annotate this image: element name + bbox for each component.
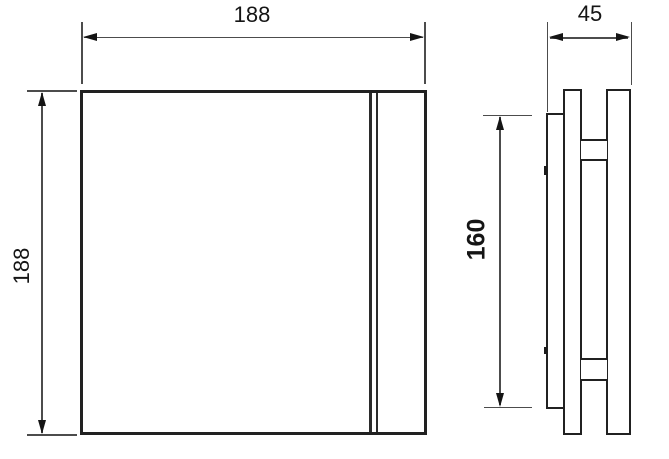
- side-view-bottom-spacer: [581, 358, 607, 381]
- dimension-label-duct-height: 160: [465, 205, 490, 275]
- arrowhead-down-icon: [38, 420, 46, 434]
- extension-line: [631, 22, 633, 85]
- dimension-label-front-height: 188: [11, 231, 33, 301]
- side-view-front-panel-bar: [606, 89, 631, 435]
- arrowhead-right-icon: [616, 33, 630, 41]
- back-plate-tab-mark-top: [544, 166, 547, 175]
- technical-drawing-canvas: 188 188 45 160: [0, 0, 669, 459]
- arrowhead-right-icon: [410, 33, 424, 41]
- side-view-top-spacer: [581, 139, 607, 161]
- arrowhead-up-icon: [38, 92, 46, 106]
- back-plate-tab-mark-bottom: [544, 347, 547, 354]
- arrowhead-up-icon: [496, 116, 504, 130]
- dimension-line: [41, 93, 43, 433]
- extension-line: [27, 434, 77, 436]
- extension-line: [483, 115, 532, 117]
- dimension-label-side-depth: 45: [555, 3, 625, 25]
- front-panel-seam-line-right: [376, 93, 379, 432]
- extension-line: [27, 90, 77, 92]
- extension-line: [424, 22, 426, 84]
- arrowhead-left-icon: [549, 33, 563, 41]
- side-view-body-bar: [563, 89, 582, 435]
- dimension-label-front-width: 188: [217, 4, 287, 26]
- front-panel-seam-line-left: [369, 93, 372, 432]
- side-view-back-plate: [546, 113, 563, 409]
- extension-line: [484, 407, 532, 409]
- arrowhead-down-icon: [496, 393, 504, 407]
- extension-line: [81, 22, 83, 84]
- arrowhead-left-icon: [83, 33, 97, 41]
- dimension-line: [84, 37, 423, 39]
- dimension-line: [499, 117, 501, 405]
